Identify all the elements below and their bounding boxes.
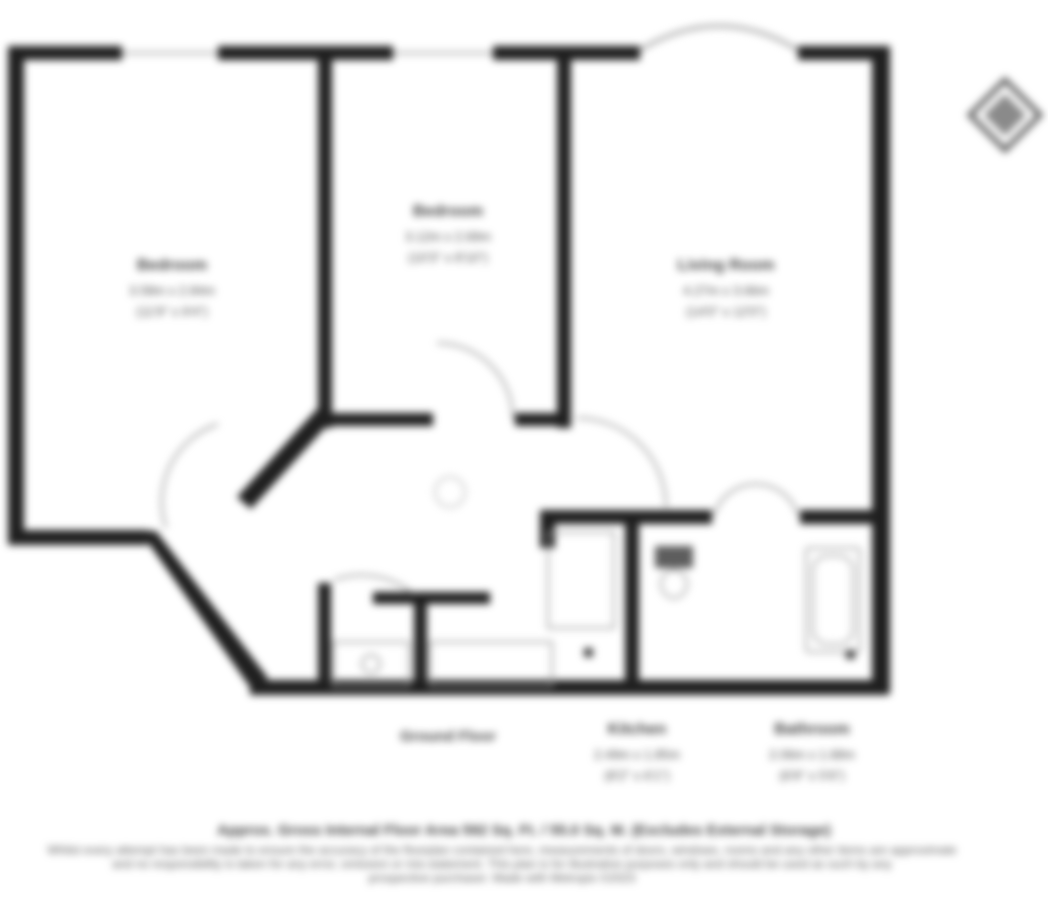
kitchen-counter-column <box>548 532 614 628</box>
door-arc-kitchen <box>334 575 414 594</box>
room-label-living-room: Living Room 4.27m x 3.66m (14'0" x 12'0"… <box>678 258 775 318</box>
room-name: Living Room <box>678 258 775 274</box>
door-arc-bedroom-2 <box>437 343 513 419</box>
wall-left <box>8 46 24 545</box>
footer-area-title: Approx. Gross Internal Floor Area 592 Sq… <box>217 822 831 839</box>
room-name: Bathroom <box>769 722 855 738</box>
wall-bathroom-left <box>625 510 639 695</box>
compass-icon <box>970 80 1040 150</box>
room-dimensions-imperial: (11'9" x 9'4") <box>129 305 215 318</box>
wall-top-1 <box>8 46 122 60</box>
wall-bottom-left <box>8 530 148 545</box>
room-name: Bedroom <box>129 258 215 274</box>
fixtures-layer <box>333 477 860 686</box>
hall-fixture <box>435 477 465 507</box>
wall-bed2-living <box>557 60 571 428</box>
room-dimensions-metric: 2.06m x 1.68m <box>769 748 855 761</box>
wall-kitchen-left-stub <box>318 583 331 683</box>
footer-disclaimer-line: prospective purchaser. Made with Metropi… <box>369 871 636 885</box>
room-name: Kitchen <box>594 722 680 738</box>
wall-bed1-bed2 <box>318 60 332 428</box>
marker-dot-1 <box>584 648 593 657</box>
floorplan-svg <box>0 0 1048 904</box>
wall-top-3 <box>493 46 640 60</box>
door-arc-bedroom-1 <box>162 424 218 528</box>
room-dimensions-metric: 3.12m x 2.69m <box>405 230 491 243</box>
floorplan-page: Bedroom 3.58m x 2.84m (11'9" x 9'4") Bed… <box>0 0 1048 904</box>
toilet-cistern <box>655 546 693 568</box>
wall-kitchen-t-vertical <box>414 592 427 684</box>
marker-dot-2 <box>846 650 855 659</box>
wall-bed1-diagonal <box>237 409 331 509</box>
wall-bed2-bottom-a <box>318 413 433 426</box>
bay-window-arc <box>640 26 798 50</box>
door-arc-bathroom <box>714 484 798 515</box>
kitchen-sink <box>362 655 380 673</box>
room-label-bathroom: Bathroom 2.06m x 1.68m (6'9" x 5'6") <box>769 722 855 782</box>
room-dimensions-metric: 4.27m x 3.66m <box>678 284 775 297</box>
floor-caption: Ground Floor <box>400 728 496 745</box>
door-arc-living-room <box>577 418 666 507</box>
room-label-kitchen: Kitchen 2.49m x 1.85m (8'2" x 6'1") <box>594 722 680 782</box>
toilet-bowl <box>661 570 687 598</box>
room-dimensions-imperial: (8'2" x 6'1") <box>594 769 680 782</box>
room-dimensions-metric: 2.49m x 1.85m <box>594 748 680 761</box>
room-dimensions-imperial: (14'0" x 12'0") <box>678 305 775 318</box>
bathtub-inner <box>813 556 853 644</box>
wall-living-bottom-b <box>800 510 888 524</box>
room-dimensions-imperial: (6'9" x 5'6") <box>769 769 855 782</box>
wall-diagonal-outer <box>140 531 268 690</box>
room-label-bedroom-2: Bedroom 3.12m x 2.69m (10'3" x 8'10") <box>405 204 491 264</box>
room-dimensions-metric: 3.58m x 2.84m <box>129 284 215 297</box>
wall-top-2 <box>218 46 393 60</box>
floorplan-canvas: Bedroom 3.58m x 2.84m (11'9" x 9'4") Bed… <box>0 0 1048 904</box>
kitchen-counter-left <box>333 642 409 686</box>
wall-kitchen-t-horizontal <box>373 592 490 604</box>
wall-bed2-bottom-b <box>515 413 571 426</box>
doors-layer <box>162 343 798 594</box>
kitchen-counter-right <box>430 642 552 686</box>
room-dimensions-imperial: (10'3" x 8'10") <box>405 251 491 264</box>
wall-bottom <box>250 680 888 695</box>
wall-right <box>872 46 890 694</box>
footer-disclaimer-line: and no responsibility is taken for any e… <box>112 857 892 871</box>
walls-layer <box>8 46 890 695</box>
room-label-bedroom-1: Bedroom 3.58m x 2.84m (11'9" x 9'4") <box>129 258 215 318</box>
footer-disclaimer-line: Whilst every attempt has been made to en… <box>47 843 956 857</box>
room-name: Bedroom <box>405 204 491 220</box>
